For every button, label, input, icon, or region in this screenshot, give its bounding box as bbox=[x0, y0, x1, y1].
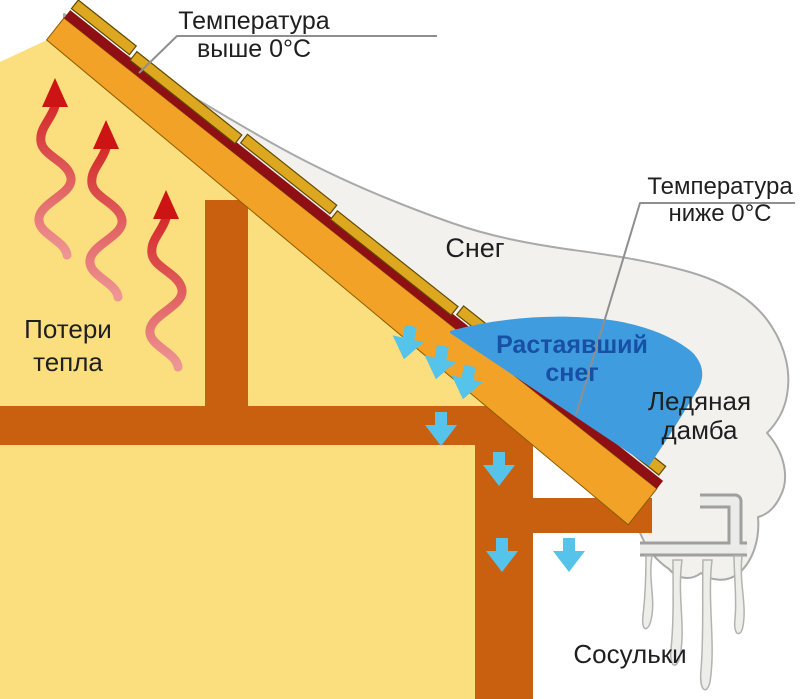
label-ice-dam-line2: дамба bbox=[627, 416, 772, 445]
label-heat-loss-line2: тепла bbox=[12, 346, 124, 379]
label-temp-above-line1: Температура bbox=[172, 7, 336, 35]
label-snow: Снег bbox=[420, 233, 530, 263]
label-melted-snow: Растаявший снег bbox=[472, 331, 672, 387]
label-heat-loss: Потери тепла bbox=[12, 313, 124, 378]
label-temp-below-line1: Температура bbox=[642, 174, 798, 201]
icicle bbox=[643, 556, 653, 629]
ice-dam-diagram: Температура выше 0°С Температура ниже 0°… bbox=[0, 0, 800, 699]
label-temp-below-line2: ниже 0°С bbox=[642, 201, 798, 228]
drip-arrow-7 bbox=[553, 538, 585, 572]
label-temp-above-line2: выше 0°С bbox=[172, 35, 336, 63]
label-temp-below: Температура ниже 0°С bbox=[642, 174, 798, 228]
label-icicles: Сосульки bbox=[560, 640, 700, 669]
wall-stud-left bbox=[205, 200, 248, 406]
label-melted-snow-line2: снег bbox=[472, 359, 672, 387]
wall-stud-right bbox=[475, 445, 533, 699]
label-ice-dam-line1: Ледяная bbox=[627, 387, 772, 416]
label-heat-loss-line1: Потери bbox=[12, 313, 124, 346]
label-melted-snow-line1: Растаявший bbox=[472, 331, 672, 359]
label-ice-dam: Ледяная дамба bbox=[627, 387, 772, 445]
icicle bbox=[701, 560, 712, 690]
label-temp-above: Температура выше 0°С bbox=[172, 7, 336, 63]
